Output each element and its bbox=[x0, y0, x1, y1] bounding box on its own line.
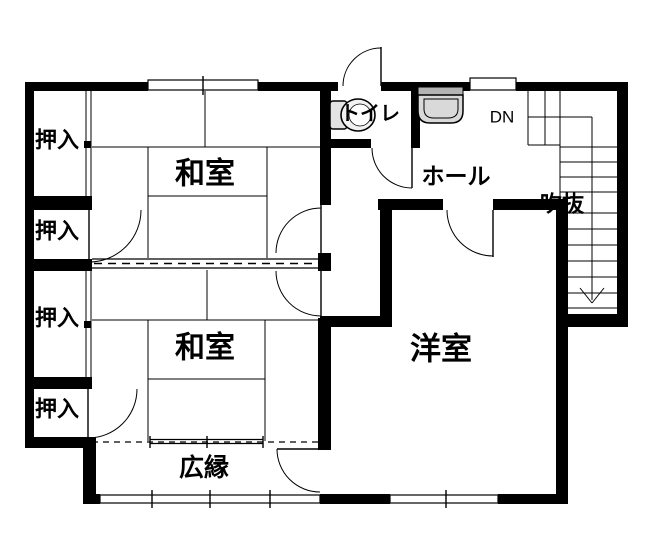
closet-fronts bbox=[84, 91, 91, 377]
label-closet-2: 押入 bbox=[35, 219, 79, 244]
label-veranda: 広縁 bbox=[179, 453, 229, 482]
veranda-door bbox=[277, 449, 320, 492]
closet4-door bbox=[88, 389, 137, 438]
veranda-boundary bbox=[92, 436, 318, 448]
label-closet-4: 押入 bbox=[35, 397, 79, 422]
label-japanese-room-1: 和室 bbox=[175, 157, 235, 191]
label-hall: ホール bbox=[422, 163, 491, 189]
washitsu1-door bbox=[276, 205, 321, 253]
window bbox=[390, 495, 498, 503]
label-stairs-down: DN bbox=[490, 108, 515, 127]
washbasin-fixture bbox=[418, 87, 463, 123]
floorplan-drawing: 押入 押入 押入 押入 和室 和室 トイレ ホール DN 吹抜 広縁 洋室 bbox=[0, 0, 648, 534]
fusuma-partition bbox=[92, 259, 318, 268]
label-closet-3: 押入 bbox=[35, 306, 79, 331]
interior-walls bbox=[25, 83, 556, 450]
label-toilet: トイレ bbox=[340, 103, 400, 125]
western-room-door bbox=[447, 210, 493, 257]
closet2-door bbox=[89, 210, 141, 262]
entrance-door bbox=[343, 47, 381, 86]
toilet-door bbox=[372, 148, 412, 188]
window bbox=[470, 78, 516, 90]
label-atrium: 吹抜 bbox=[540, 192, 585, 217]
label-japanese-room-2: 和室 bbox=[175, 331, 235, 365]
label-closet-1: 押入 bbox=[35, 128, 79, 153]
room-labels: 押入 押入 押入 押入 和室 和室 トイレ ホール DN 吹抜 広縁 洋室 bbox=[35, 103, 585, 482]
floorplan-canvas: 押入 押入 押入 押入 和室 和室 トイレ ホール DN 吹抜 広縁 洋室 bbox=[0, 0, 648, 534]
washitsu2-door bbox=[276, 271, 321, 318]
label-western-room: 洋室 bbox=[410, 332, 472, 367]
